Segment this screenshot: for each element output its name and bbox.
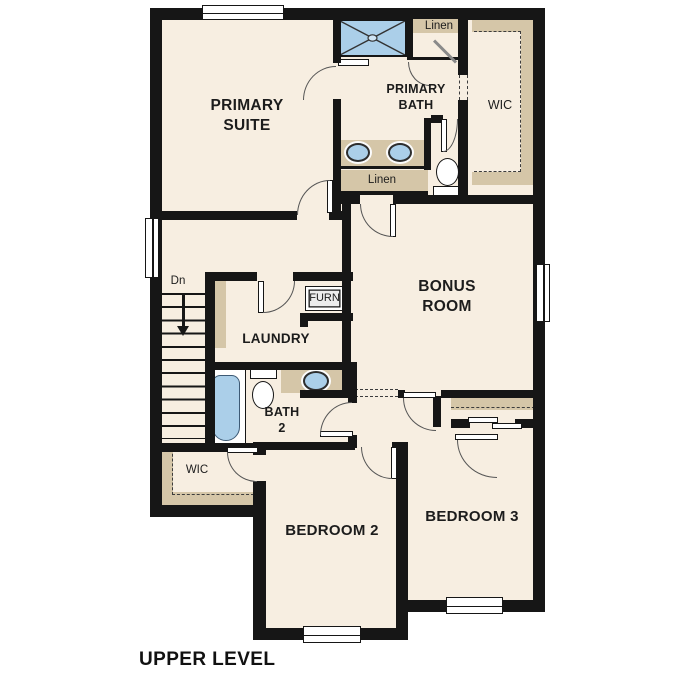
window-pane bbox=[152, 219, 154, 277]
window bbox=[145, 218, 159, 278]
wall bbox=[253, 442, 355, 450]
closet-slider-door bbox=[492, 423, 522, 429]
linen-closet-hall: Linen bbox=[336, 170, 428, 195]
wall bbox=[253, 481, 266, 640]
room-label-wic-lower: WIC bbox=[177, 464, 217, 477]
room-label-primary-bath: PRIMARY BATH bbox=[371, 81, 461, 113]
wall bbox=[393, 195, 545, 204]
window-pane bbox=[304, 635, 360, 637]
wall bbox=[396, 442, 408, 640]
furnace-label: FURN bbox=[309, 292, 340, 304]
wall bbox=[342, 390, 355, 398]
toilet-icon bbox=[436, 158, 459, 186]
wall bbox=[293, 272, 353, 281]
wic-shelf bbox=[521, 19, 533, 185]
laundry-counter bbox=[215, 281, 226, 348]
wall bbox=[424, 118, 431, 170]
room-label-bonus-room: BONUS ROOM bbox=[397, 277, 497, 317]
shower-pan-icon bbox=[340, 21, 405, 55]
wall bbox=[205, 362, 357, 370]
wall bbox=[300, 390, 348, 398]
hall-opening-dashline bbox=[355, 389, 398, 397]
room-label-primary-suite: PRIMARY SUITE bbox=[187, 96, 307, 136]
window bbox=[446, 597, 503, 614]
sink-icon bbox=[303, 371, 329, 391]
sink-icon bbox=[346, 143, 370, 162]
window bbox=[536, 264, 550, 322]
wic-shelf bbox=[472, 172, 533, 185]
linen-label: Linen bbox=[368, 174, 396, 186]
room-label-bath-2: BATH 2 bbox=[262, 404, 302, 436]
stairs-arrow bbox=[182, 294, 185, 327]
room-label-bedroom-3: BEDROOM 3 bbox=[412, 507, 532, 526]
window bbox=[202, 5, 284, 20]
wall bbox=[458, 8, 468, 75]
room-label-laundry: LAUNDRY bbox=[226, 330, 326, 347]
linen-label: Linen bbox=[425, 20, 453, 32]
room-label-wic-upper: WIC bbox=[480, 99, 520, 113]
shower bbox=[338, 19, 407, 57]
sink-icon bbox=[388, 143, 412, 162]
window bbox=[303, 626, 361, 643]
wall bbox=[150, 505, 265, 517]
wall bbox=[441, 390, 545, 398]
wall bbox=[300, 313, 308, 327]
room-label-bedroom-2: BEDROOM 2 bbox=[272, 521, 392, 540]
plan-title: UPPER LEVEL bbox=[139, 649, 275, 671]
floor-plan: Linen FURN Linen bbox=[0, 0, 687, 687]
wall bbox=[333, 8, 341, 63]
wall bbox=[205, 272, 215, 448]
window-pane bbox=[203, 13, 283, 15]
wall bbox=[458, 100, 468, 195]
window-pane bbox=[543, 265, 545, 321]
window-pane bbox=[447, 606, 502, 608]
wall bbox=[407, 57, 465, 60]
closet-rod-dashline bbox=[451, 407, 540, 409]
stairs-down-label: Dn bbox=[165, 275, 191, 288]
wall bbox=[160, 211, 297, 220]
bathtub-basin bbox=[212, 375, 240, 441]
furnace: FURN bbox=[305, 286, 344, 311]
wall bbox=[333, 99, 341, 220]
shower-curb bbox=[338, 59, 369, 66]
stairs-arrow-head-icon bbox=[177, 326, 189, 336]
